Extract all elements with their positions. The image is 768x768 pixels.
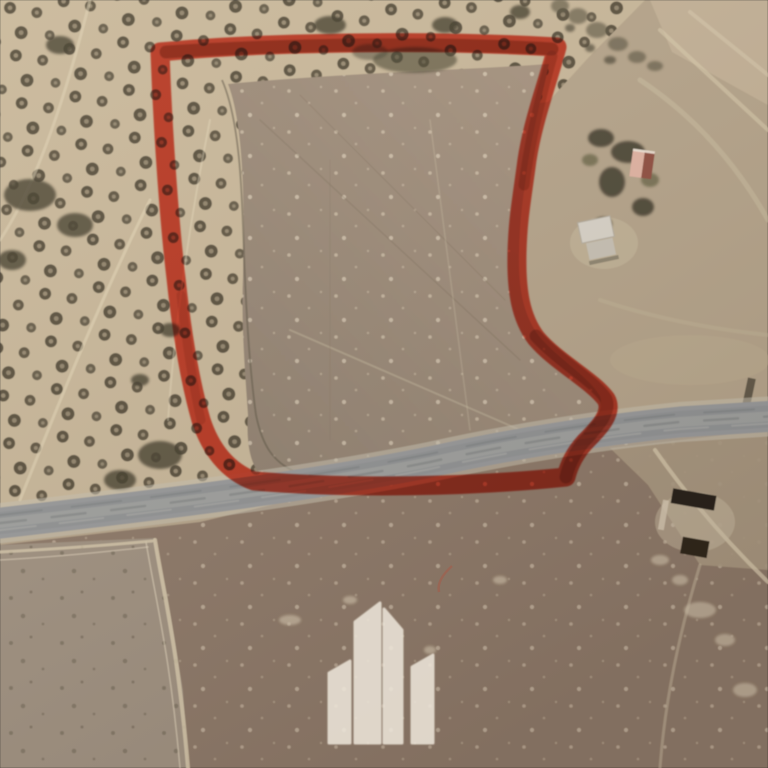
satellite-image [0,0,768,768]
logo-tower-left [329,661,350,743]
logo-tower-right [412,655,433,743]
satellite-photo-canvas [0,0,768,768]
logo-tower-narrow [384,609,402,743]
logo-tower-main [355,603,380,743]
